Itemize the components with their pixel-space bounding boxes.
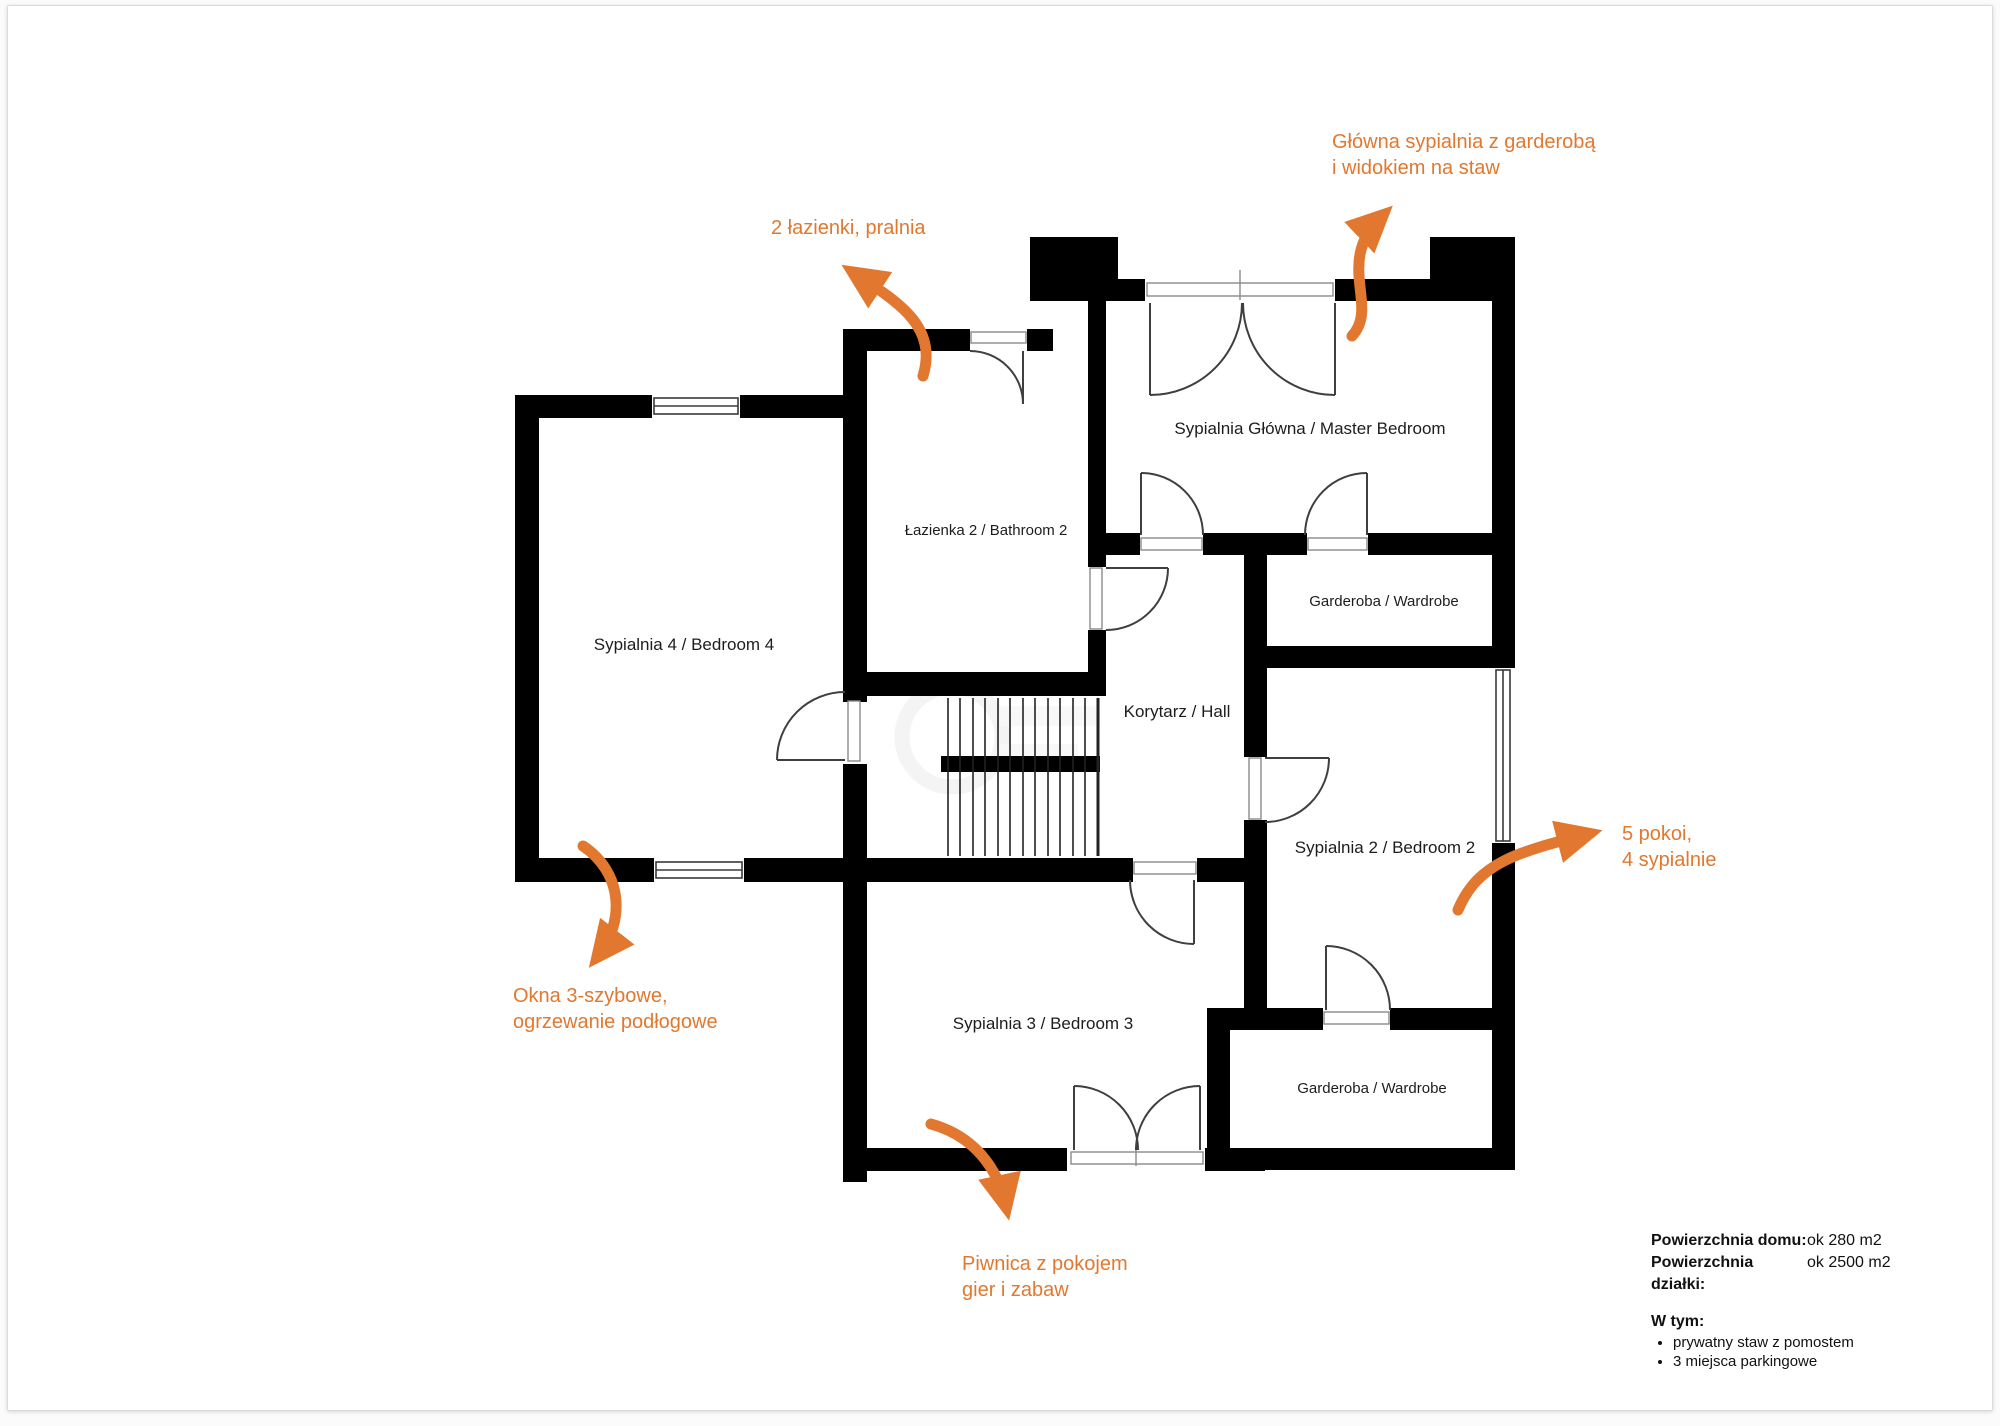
room-label-wardrobe2: Garderoba / Wardrobe <box>1297 1080 1447 1097</box>
door-symbol <box>1141 473 1203 535</box>
floor-plan: Sypialnia 4 / Bedroom 4 Łazienka 2 / Bat… <box>0 0 2000 1426</box>
room-label-bedroom4: Sypialnia 4 / Bedroom 4 <box>594 635 775 654</box>
wall <box>1244 646 1515 668</box>
info-bullet-list: prywatny staw z pomostem 3 miejsca parki… <box>1651 1335 1981 1370</box>
wall <box>1368 533 1515 555</box>
door-symbol <box>1130 880 1194 944</box>
window-symbol <box>1496 670 1510 841</box>
info-value: ok 280 m2 <box>1807 1230 1981 1252</box>
note-basement-line2: gier i zabaw <box>962 1279 1069 1301</box>
wall <box>515 858 654 882</box>
room-label-hall: Korytarz / Hall <box>1124 702 1231 721</box>
wall <box>1088 533 1140 555</box>
door-sill <box>1090 568 1102 629</box>
room-label-master-bedroom: Sypialnia Główna / Master Bedroom <box>1174 419 1445 438</box>
door-sill <box>1324 1012 1389 1024</box>
wall <box>1492 279 1515 668</box>
window-symbol <box>654 398 738 414</box>
wall <box>1030 279 1145 301</box>
wall <box>843 329 970 351</box>
door-symbol <box>1305 473 1367 535</box>
note-master-line1: Główna sypialnia z garderobą <box>1332 131 1596 153</box>
wall <box>1390 1008 1515 1030</box>
door-symbol-double <box>1074 1086 1200 1150</box>
wall <box>1207 1008 1230 1170</box>
door-symbol <box>1106 568 1168 630</box>
room-label-bedroom2: Sypialnia 2 / Bedroom 2 <box>1295 838 1476 857</box>
wall <box>843 672 1106 696</box>
info-label: Powierzchnia działki: <box>1651 1252 1807 1296</box>
windows <box>654 398 1510 878</box>
wall <box>1492 843 1515 1170</box>
wall <box>1027 329 1053 351</box>
room-label-wardrobe1: Garderoba / Wardrobe <box>1309 593 1459 610</box>
wall <box>843 764 867 1182</box>
property-info: Powierzchnia domu: ok 280 m2 Powierzchni… <box>1651 1230 1981 1370</box>
room-label-bathroom2: Łazienka 2 / Bathroom 2 <box>905 522 1068 539</box>
door-sill <box>1141 538 1202 550</box>
door-symbol <box>1326 946 1390 1010</box>
note-rooms-line2: 4 sypialnie <box>1622 849 1717 871</box>
door-symbol <box>777 692 845 760</box>
window-symbol <box>656 862 742 878</box>
stair-landing <box>941 756 1100 772</box>
note-rooms-line1: 5 pokoi, <box>1622 823 1692 845</box>
note-master-line2: i widokiem na staw <box>1332 157 1500 179</box>
info-value: ok 2500 m2 <box>1807 1252 1981 1296</box>
wall <box>1088 279 1106 533</box>
info-subheading: W tym: <box>1651 1312 1981 1332</box>
annotation-texts: Główna sypialnia z garderobą i widokiem … <box>513 131 1717 1301</box>
door-sill <box>1134 862 1196 874</box>
info-row-house-area: Powierzchnia domu: ok 280 m2 <box>1651 1230 1981 1252</box>
door-sill <box>848 701 860 761</box>
door-sill <box>971 332 1026 343</box>
arrow-rooms-note <box>1458 834 1588 910</box>
wall <box>867 858 1133 882</box>
wall <box>1244 646 1267 757</box>
note-windows-line1: Okna 3-szybowe, <box>513 985 668 1007</box>
info-bullet: prywatny staw z pomostem <box>1673 1335 1981 1351</box>
door-symbol-double <box>1150 303 1335 395</box>
door-sill <box>1071 1152 1203 1164</box>
wall <box>1244 820 1267 1010</box>
note-basement-line1: Piwnica z pokojem <box>962 1253 1128 1275</box>
info-row-plot-area: Powierzchnia działki: ok 2500 m2 <box>1651 1252 1981 1296</box>
door-sill <box>1308 538 1367 550</box>
room-label-bedroom3: Sypialnia 3 / Bedroom 3 <box>953 1014 1134 1033</box>
wall <box>843 1148 1067 1171</box>
arrow-master-note <box>1352 216 1382 336</box>
note-bath-line1: 2 łazienki, pralnia <box>771 217 926 239</box>
info-label: Powierzchnia domu: <box>1651 1230 1807 1252</box>
wall <box>515 395 539 882</box>
door-symbol <box>970 351 1023 404</box>
wall <box>1205 1148 1265 1171</box>
wall <box>1088 630 1106 672</box>
wall <box>515 395 652 418</box>
wall-chimney <box>1030 237 1118 285</box>
note-windows-line2: ogrzewanie podłogowe <box>513 1011 718 1033</box>
door-sill <box>1249 758 1261 819</box>
door-symbol <box>1265 758 1329 822</box>
wall <box>843 329 867 702</box>
wall <box>1197 858 1267 882</box>
info-bullet: 3 miejsca parkingowe <box>1673 1354 1981 1370</box>
